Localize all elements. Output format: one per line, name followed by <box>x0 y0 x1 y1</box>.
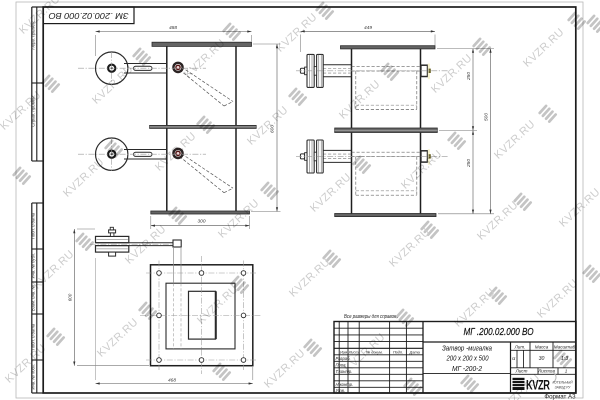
svg-text:449: 449 <box>364 25 372 31</box>
svg-text:КОТЕЛЬНЫЙ: КОТЕЛЬНЫЙ <box>552 381 573 385</box>
svg-text:500: 500 <box>484 113 490 121</box>
svg-text:Все размеры для справок .: Все размеры для справок . <box>344 314 399 320</box>
svg-text:250: 250 <box>466 159 472 168</box>
svg-text:488: 488 <box>169 25 177 31</box>
svg-text:Инв. № подл.: Инв. № подл. <box>31 364 36 390</box>
svg-text:МГ -200-2: МГ -200-2 <box>452 364 483 373</box>
svg-text:Листов: Листов <box>537 369 555 374</box>
svg-text:Масштаб: Масштаб <box>554 345 576 350</box>
svg-text:300: 300 <box>197 219 205 225</box>
svg-text:Инв. № дубл.: Инв. № дубл. <box>31 253 36 279</box>
svg-text:ЗАВОД РУ: ЗАВОД РУ <box>555 385 572 389</box>
svg-text:Лит.: Лит. <box>514 345 526 350</box>
svg-text:200 х 200 х 500: 200 х 200 х 500 <box>446 354 489 363</box>
svg-text:ЗМ .200.02.000 ВО: ЗМ .200.02.000 ВО <box>49 11 129 20</box>
svg-text:Лист: Лист <box>515 369 528 374</box>
svg-text:и: и <box>512 356 515 362</box>
svg-text:468: 468 <box>168 377 176 383</box>
svg-text:Изм: Изм <box>340 350 347 354</box>
svg-text:250: 250 <box>466 72 472 81</box>
svg-text:Формат А3: Формат А3 <box>544 393 576 400</box>
svg-text:Затвор -мигалка: Затвор -мигалка <box>442 343 492 352</box>
svg-text:Дата: Дата <box>409 350 420 354</box>
svg-text:600: 600 <box>67 293 72 301</box>
svg-text:Н.контр.: Н.контр. <box>336 382 354 387</box>
svg-text:Подп. и дата: Подп. и дата <box>31 212 36 239</box>
svg-text:Масса: Масса <box>535 345 549 350</box>
svg-text:Утв.: Утв. <box>336 388 346 393</box>
svg-text:Подп.: Подп. <box>393 350 403 354</box>
svg-text:Взам. инв. №: Взам. инв. № <box>31 285 36 311</box>
svg-text:30: 30 <box>539 356 545 362</box>
svg-text:1: 1 <box>565 369 568 374</box>
svg-text:МГ .200.02.000 ВО: МГ .200.02.000 ВО <box>464 326 534 338</box>
